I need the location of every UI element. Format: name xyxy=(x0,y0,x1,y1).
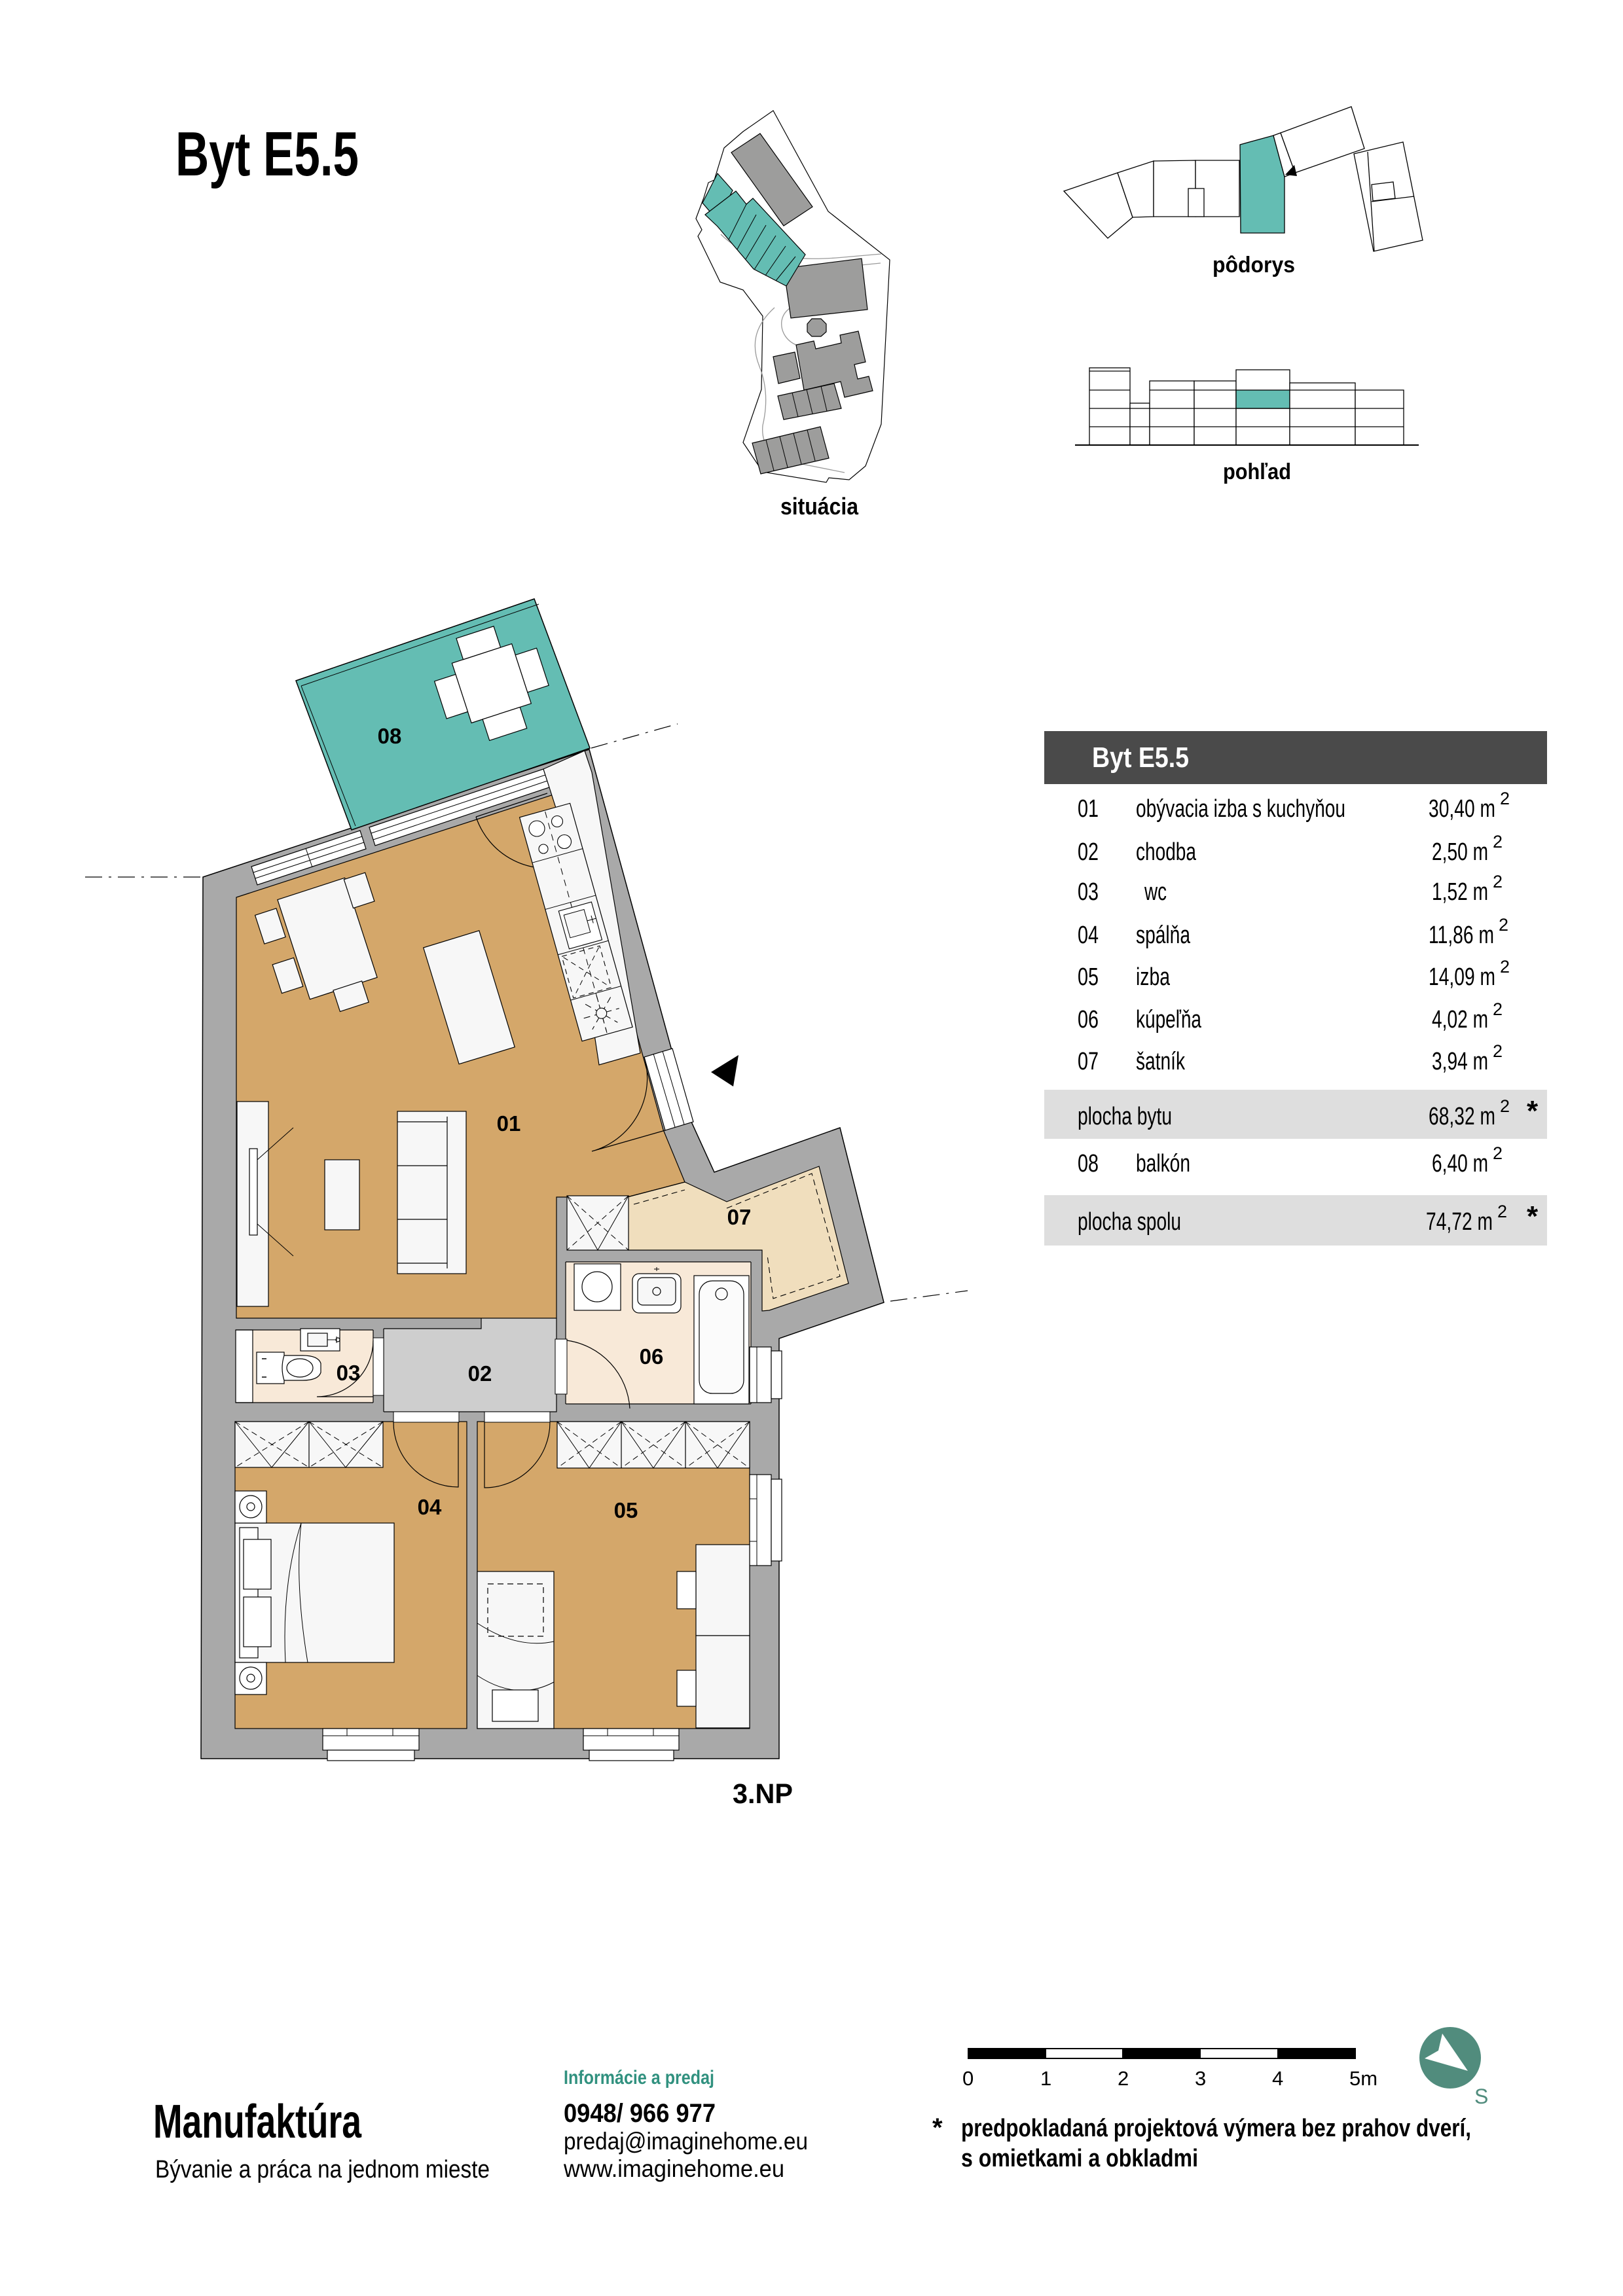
svg-text:0948/ 966 977: 0948/ 966 977 xyxy=(564,2099,716,2128)
svg-text:predaj@imaginehome.eu: predaj@imaginehome.eu xyxy=(564,2128,808,2155)
svg-text:chodba: chodba xyxy=(1136,838,1197,866)
svg-text:obývacia izba s kuchyňou: obývacia izba s kuchyňou xyxy=(1136,795,1345,823)
svg-text:03: 03 xyxy=(337,1361,361,1385)
svg-text:2: 2 xyxy=(1493,1041,1503,1061)
svg-text:*: * xyxy=(1527,1095,1539,1127)
svg-text:pôdorys: pôdorys xyxy=(1213,253,1295,278)
svg-text:08: 08 xyxy=(378,724,402,748)
svg-text:Bývanie a práca na jednom mies: Bývanie a práca na jednom mieste xyxy=(155,2156,490,2183)
svg-text:02: 02 xyxy=(1078,838,1099,866)
svg-text:*: * xyxy=(932,2113,943,2142)
svg-text:2,50 m: 2,50 m xyxy=(1432,838,1488,866)
svg-text:1,52 m: 1,52 m xyxy=(1432,878,1488,906)
svg-text:Informácie a predaj: Informácie a predaj xyxy=(564,2067,714,2089)
svg-text:pohľad: pohľad xyxy=(1223,459,1291,484)
svg-text:6,40 m: 6,40 m xyxy=(1432,1150,1488,1177)
svg-text:1: 1 xyxy=(1040,2067,1051,2090)
svg-text:Manufaktúra: Manufaktúra xyxy=(153,2096,362,2148)
svg-text:05: 05 xyxy=(614,1498,638,1522)
svg-text:spálňa: spálňa xyxy=(1136,922,1191,949)
svg-text:izba: izba xyxy=(1136,963,1171,991)
svg-text:4: 4 xyxy=(1272,2067,1283,2090)
svg-text:Byt E5.5: Byt E5.5 xyxy=(175,119,359,189)
svg-text:2: 2 xyxy=(1497,1202,1507,1221)
svg-text:07: 07 xyxy=(1078,1048,1099,1075)
svg-text:11,86 m: 11,86 m xyxy=(1429,922,1494,949)
svg-text:balkón: balkón xyxy=(1136,1150,1190,1177)
svg-text:04: 04 xyxy=(1078,922,1099,949)
svg-text:14,09 m: 14,09 m xyxy=(1429,963,1495,991)
svg-text:2: 2 xyxy=(1500,789,1510,808)
svg-text:06: 06 xyxy=(640,1344,664,1369)
svg-text:30,40 m: 30,40 m xyxy=(1429,795,1495,823)
svg-text:*: * xyxy=(1527,1200,1539,1232)
svg-text:situácia: situácia xyxy=(780,493,859,520)
svg-text:2: 2 xyxy=(1493,832,1503,852)
svg-text:06: 06 xyxy=(1078,1006,1099,1033)
svg-text:01: 01 xyxy=(1078,795,1099,823)
svg-text:08: 08 xyxy=(1078,1150,1099,1177)
svg-text:74,72 m: 74,72 m xyxy=(1426,1208,1493,1236)
svg-text:2: 2 xyxy=(1499,915,1508,935)
svg-text:4,02 m: 4,02 m xyxy=(1432,1006,1488,1033)
svg-text:0: 0 xyxy=(962,2067,974,2090)
svg-text:2: 2 xyxy=(1493,872,1503,891)
svg-text:07: 07 xyxy=(727,1205,752,1229)
svg-text:2: 2 xyxy=(1493,999,1503,1019)
svg-text:03: 03 xyxy=(1078,878,1099,906)
svg-text:5m: 5m xyxy=(1349,2067,1377,2090)
svg-text:www.imaginehome.eu: www.imaginehome.eu xyxy=(563,2155,784,2182)
svg-text:plocha spolu: plocha spolu xyxy=(1078,1208,1181,1236)
svg-text:s omietkami a obkladmi: s omietkami a obkladmi xyxy=(961,2145,1198,2172)
svg-text:68,32 m: 68,32 m xyxy=(1429,1103,1495,1130)
svg-text:šatník: šatník xyxy=(1136,1048,1186,1075)
svg-text:predpokladaná projektová výmer: predpokladaná projektová výmera bez prah… xyxy=(961,2115,1471,2142)
svg-text:kúpeľňa: kúpeľňa xyxy=(1136,1006,1202,1033)
svg-text:3,94 m: 3,94 m xyxy=(1432,1048,1488,1075)
svg-text:05: 05 xyxy=(1078,963,1099,991)
svg-text:2: 2 xyxy=(1500,957,1510,977)
svg-text:3: 3 xyxy=(1195,2067,1206,2090)
svg-text:2: 2 xyxy=(1118,2067,1129,2090)
svg-text:plocha bytu: plocha bytu xyxy=(1078,1103,1172,1130)
svg-text:2: 2 xyxy=(1500,1096,1510,1116)
svg-text:S: S xyxy=(1474,2085,1488,2108)
svg-text:Byt E5.5: Byt E5.5 xyxy=(1092,742,1189,774)
svg-text:02: 02 xyxy=(468,1361,492,1386)
svg-text:wc: wc xyxy=(1144,878,1167,906)
svg-text:01: 01 xyxy=(497,1111,521,1136)
svg-text:04: 04 xyxy=(418,1495,442,1519)
svg-text:2: 2 xyxy=(1493,1143,1503,1163)
svg-text:3.NP: 3.NP xyxy=(733,1778,793,1810)
